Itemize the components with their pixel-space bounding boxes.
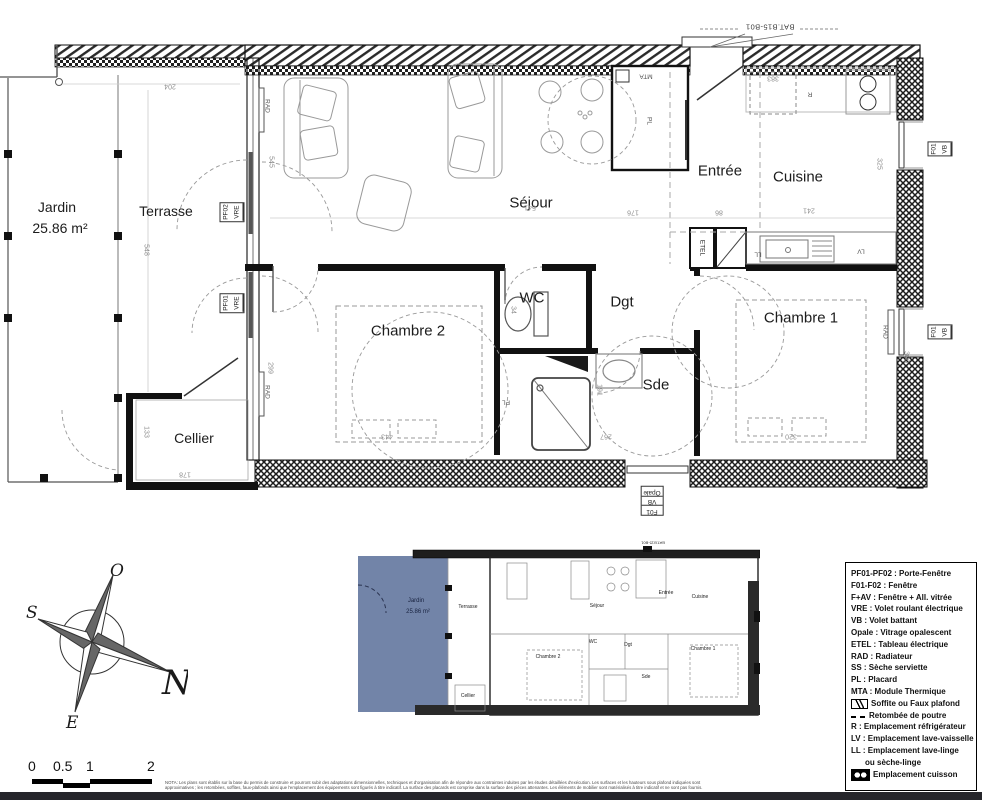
sheet-bottom-rule [0,792,982,800]
cellier-walls [126,358,258,490]
legend-text: RAD : Radiateur [851,651,912,663]
legend-text: VRE : Volet roulant électrique [851,603,963,615]
compass-n: N [161,663,188,703]
legend-item: LV : Emplacement lave-vaisselle [851,733,972,745]
tag-pl-sejour: PL [646,117,653,125]
furniture [284,64,866,442]
scale-tick-05: 0.5 [53,758,72,774]
dim-443: 443 [381,433,393,440]
legend-item: F+AV : Fenêtre + All. vitrée [851,592,972,604]
window-tag-f01-vb-opale-sde: F01 VB Opale [640,486,663,516]
kitchen-fittings [746,68,896,264]
room-label-dgt: Dgt [610,294,633,311]
legend-text: Soffite ou Faux plafond [871,698,960,710]
legend-item: VRE : Volet roulant électrique [851,603,972,615]
dim-267: 267 [600,433,612,440]
room-area-jardin: 25.86 m² [32,220,87,236]
main-plan-linework [0,0,982,545]
mini-label-cuisine: Cuisine [692,594,709,600]
legend-item: Emplacement cuisson [851,769,972,781]
room-label-chambre1: Chambre 1 [764,310,838,327]
legend-item: Soffite ou Faux plafond [851,698,972,710]
legend-text: ETEL : Tableau électrique [851,639,948,651]
room-label-entree: Entrée [698,163,742,180]
legend-text: Retombée de poutre [869,710,946,722]
window-tag-shutter: VB [940,142,952,155]
tag-rad-chambre1: RAD [882,325,889,339]
mini-label-chambre2: Chambre 2 [536,654,561,660]
legend-text: Opale : Vitrage opalescent [851,627,951,639]
legend-item: VB : Volet battant [851,615,972,627]
legend-text: F+AV : Fenêtre + All. vitrée [851,592,952,604]
building-unit-label: BAT.B15-B01 [746,23,795,32]
mini-label-jardin-area: 25.86 m² [406,609,430,615]
tag-rad-chambre2: RAD [264,385,271,399]
legend-item: Opale : Vitrage opalescent [851,627,972,639]
tag-rad-sejour: RAD [264,99,271,113]
scale-tick-0: 0 [28,758,36,774]
legend-text: PL : Placard [851,674,897,686]
mini-label-sejour: Séjour [590,603,604,609]
window-tag-shutter: VB [940,325,952,338]
nota-text: NOTA: Les plans sont établis sur la base… [165,780,835,790]
legend-item: F01-F02 : Fenêtre [851,580,972,592]
legend-item: MTA : Module Thermique [851,686,972,698]
compass-o: O [110,562,124,581]
beam-icon [851,716,866,718]
legend-item: ETEL : Tableau électrique [851,639,972,651]
tag-etel: ETEL [699,240,706,256]
dim-541: 541 [524,204,536,211]
legend-item: LL : Emplacement lave-linge [851,745,972,757]
window-tag-code: F01 [641,506,662,515]
dim-383: 383 [767,75,779,82]
dim-325: 325 [876,158,883,170]
window-tag-shutter: VRE [232,203,244,221]
west-wall [247,58,259,460]
mini-label-jardin: Jardin [408,598,424,604]
mini-jardin-highlight [358,556,448,712]
window-tag-shutter: VRE [232,294,244,312]
legend-text: PF01-PF02 : Porte-Fenêtre [851,568,951,580]
dim-204: 204 [164,83,176,90]
mini-label-chambre1: Chambre 1 [691,646,716,652]
window-tag-f01-vb-chambre1: F01 VB [928,324,953,339]
mini-label-sde: Sde [642,674,651,680]
tag-ll: LL [754,251,761,258]
legend-text: R : Emplacement réfrigérateur [851,721,966,733]
scale-segment [63,783,90,788]
dim-133: 133 [143,426,150,438]
scale-segment [90,779,152,784]
legend-text: VB : Volet battant [851,615,917,627]
floor-plan-sheet: BAT.B15-B01 Jardin 25.86 m² Terrasse Séj… [0,0,982,800]
tag-pl-sde: PL [502,399,510,406]
scale-segment [32,779,63,784]
legend-item: PF01-PF02 : Porte-Fenêtre [851,568,972,580]
sanitary-fixtures [505,292,642,450]
window-tag-code: F01 [929,142,940,155]
dim-191: 191 [596,384,603,396]
nota-line-2: approximatives ; les retombées, soffites… [165,785,835,790]
dim-300: 300 [903,351,910,363]
tag-mta: MTA [639,73,652,80]
mini-plan-linework [355,545,760,720]
cuisson-icon [851,769,870,781]
soffite-icon [851,699,868,709]
dim-176: 176 [627,209,639,216]
room-label-jardin: Jardin [38,199,76,215]
dim-178: 178 [179,471,191,478]
room-label-wc: WC [520,290,545,307]
dim-320: 320 [785,433,797,440]
tag-lv: LV [857,248,864,255]
window-tag-code: PF01 [221,294,232,312]
window-tag-code: PF02 [221,203,232,221]
mini-label-dgt: Dgt [624,642,632,648]
legend-text: F01-F02 : Fenêtre [851,580,917,592]
legend-item: R : Emplacement réfrigérateur [851,721,972,733]
legend-item: SS : Sèche serviette [851,662,972,674]
compass-e: E [65,713,79,732]
room-label-cellier: Cellier [174,430,214,446]
window-tag-glazing: Opale [641,487,662,497]
legend-item: PL : Placard [851,674,972,686]
legend-text: ou sèche-linge [851,757,921,769]
mini-label-wc: WC [589,639,597,645]
mini-label-terrasse: Terrasse [458,604,477,610]
legend-text: LV : Emplacement lave-vaisselle [851,733,974,745]
scale-tick-1: 1 [86,758,94,774]
legend-text: LL : Emplacement lave-linge [851,745,959,757]
legend-box: PF01-PF02 : Porte-Fenêtre F01-F02 : Fenê… [845,562,977,791]
dim-86: 86 [715,209,723,216]
window-tag-pf02-vre: PF02 VRE [220,202,245,222]
dim-299: 299 [267,362,274,374]
room-label-chambre2: Chambre 2 [371,323,445,340]
legend-item: Retombée de poutre [851,710,972,722]
window-tag-f01-vb-cuisine: F01 VB [928,141,953,156]
room-label-sde: Sde [643,377,670,394]
room-label-terrasse: Terrasse [139,203,193,219]
compass-s: S [26,603,38,623]
scale-tick-2: 2 [147,758,155,774]
window-tag-pf01-vre: PF01 VRE [220,293,245,313]
mini-label-cellier: Cellier [461,693,475,699]
terrace-garden-boundaries [0,45,122,482]
window-tag-code: F01 [929,325,940,338]
dim-34: 34 [510,306,517,314]
legend-text: MTA : Module Thermique [851,686,946,698]
legend-text: Emplacement cuisson [873,769,957,781]
dim-545: 545 [268,156,275,168]
legend-item: RAD : Radiateur [851,651,972,663]
legend-text: SS : Sèche serviette [851,662,927,674]
window-tag-shutter: VB [641,497,662,507]
mini-building-unit-label: BAT.B15-B01 [641,541,665,546]
tag-refrigerateur: R [808,91,813,98]
dim-548: 548 [143,244,150,256]
mini-label-entree: Entrée [659,590,674,596]
legend-item: ou sèche-linge [851,757,972,769]
compass-rose: O S N E [18,562,188,732]
dim-241: 241 [803,207,815,214]
room-label-cuisine: Cuisine [773,169,823,186]
